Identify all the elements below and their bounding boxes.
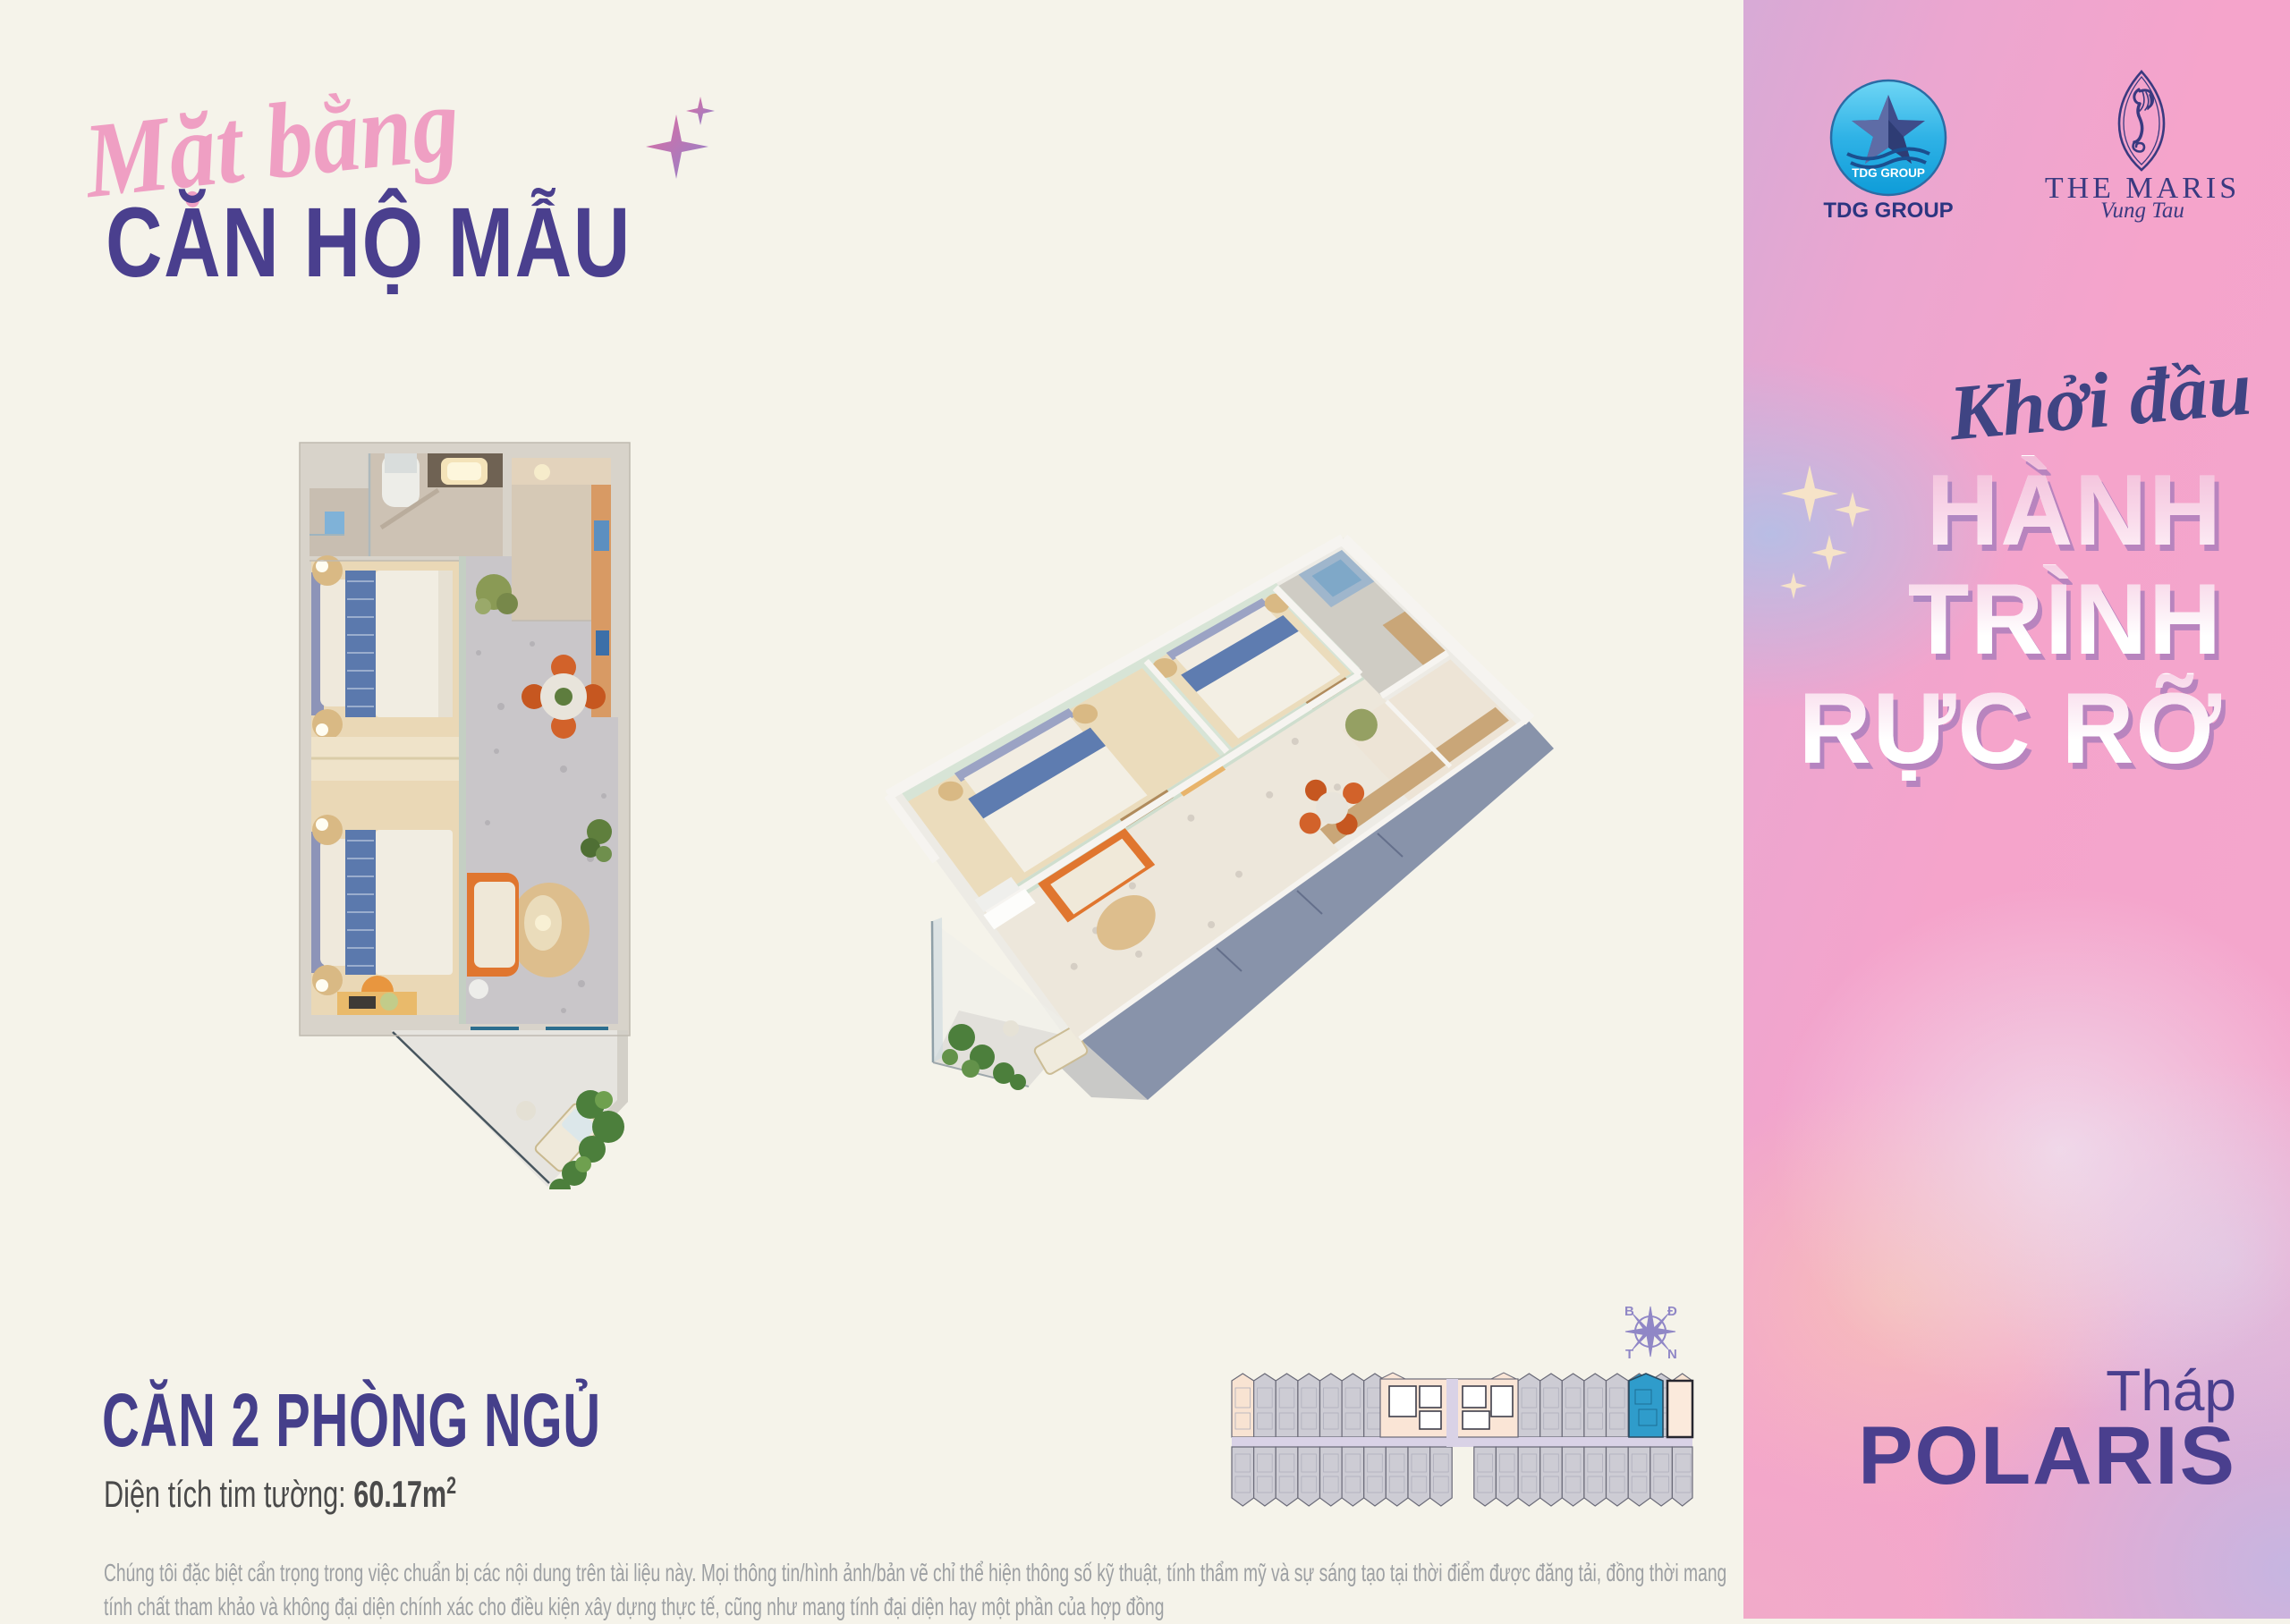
svg-text:Đ: Đ [1667, 1304, 1677, 1319]
svg-text:T: T [1625, 1347, 1633, 1362]
svg-text:B: B [1624, 1304, 1634, 1319]
svg-text:TDG GROUP: TDG GROUP [1852, 166, 1925, 180]
svg-text:N: N [1667, 1347, 1677, 1362]
